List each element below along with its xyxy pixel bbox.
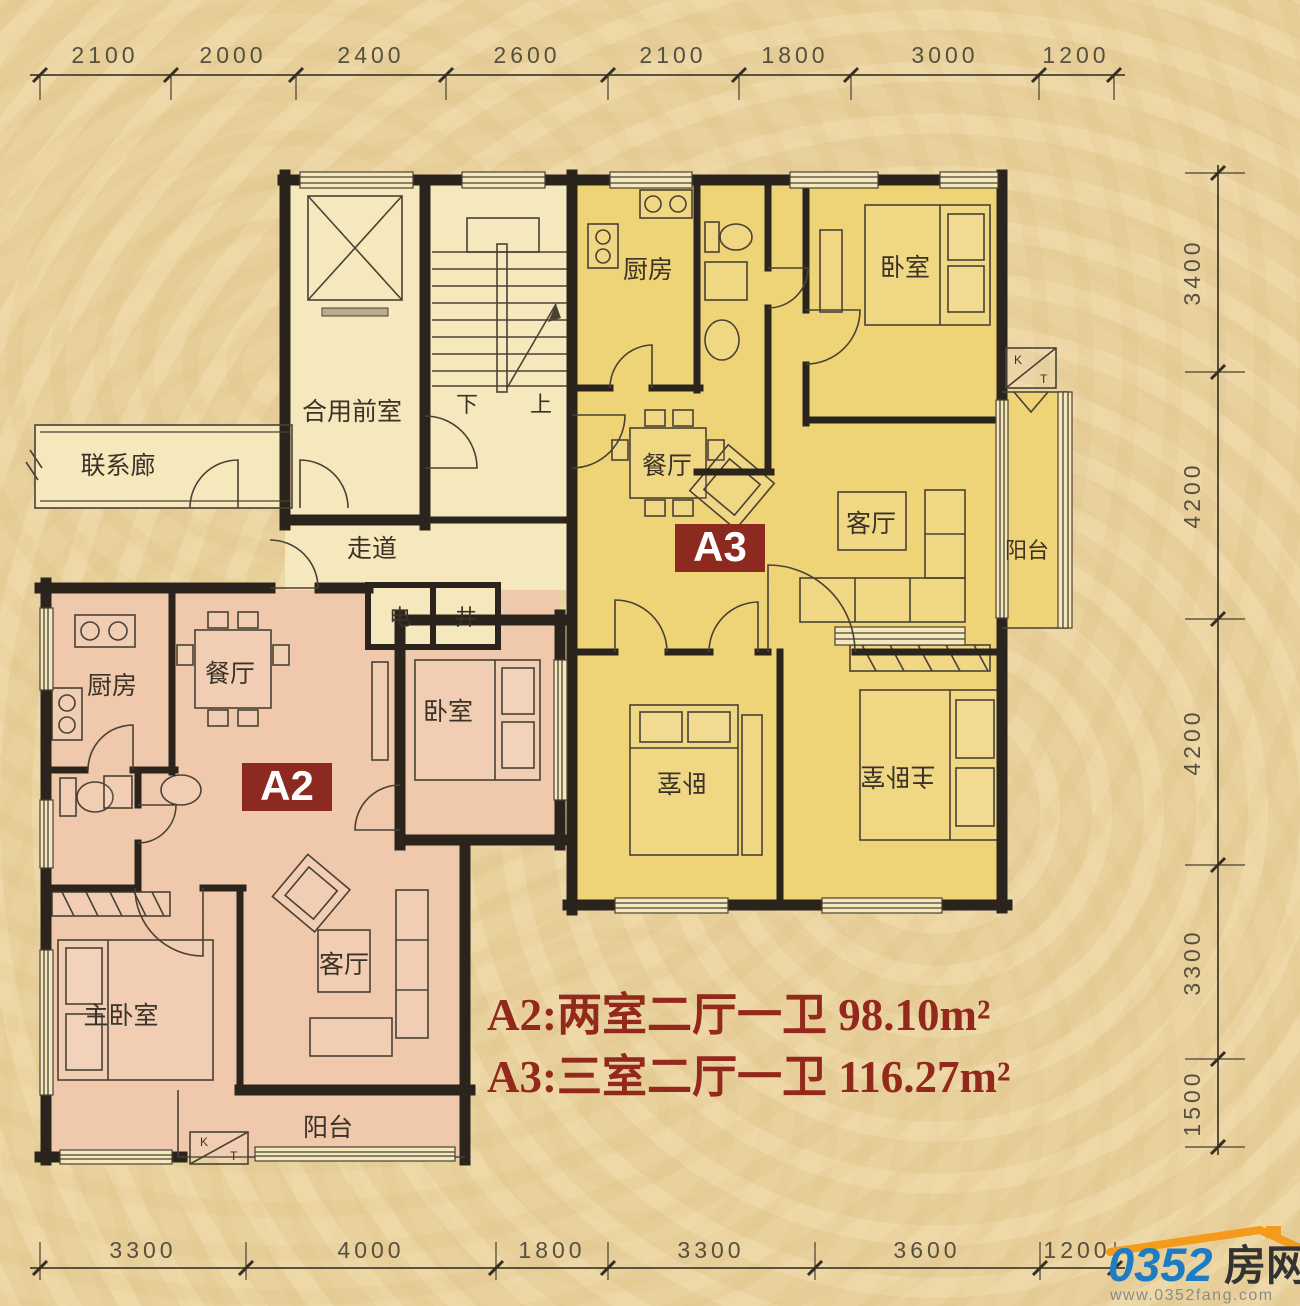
stove-icon (52, 688, 82, 740)
room-label-a3-balcony: 阳台 (1005, 538, 1049, 563)
dimension-bottom: 3300 4000 1800 3300 3600 1200 (30, 1237, 1125, 1280)
dim-label: 3000 (911, 42, 978, 68)
legend-line-a2: A2:两室二厅一卫 98.10m² (487, 989, 990, 1040)
dim-label: 4000 (337, 1237, 404, 1263)
room-label-a2-balcony: 阳台 (303, 1114, 353, 1142)
dim-label: 1800 (761, 42, 828, 68)
dim-label: 2600 (493, 42, 560, 68)
room-label-corridor: 走道 (347, 535, 397, 563)
room-label-a2-living: 客厅 (319, 951, 369, 979)
dim-label: 3300 (109, 1237, 176, 1263)
dim-label: 1800 (518, 1237, 585, 1263)
kt-t-label: T (1040, 372, 1048, 386)
dim-label: 3300 (677, 1237, 744, 1263)
dim-label: 4200 (1179, 461, 1205, 528)
badge-a2-label: A2 (260, 762, 314, 809)
logo-chimney-icon (1266, 1226, 1281, 1238)
dim-label: 1200 (1043, 1237, 1110, 1263)
wardrobe-icon (52, 892, 170, 916)
kt-k-label: K (1014, 353, 1022, 367)
dimension-right: 3400 4200 4200 3300 1500 (1179, 165, 1245, 1155)
room-label-a3-master: 主卧室 (860, 762, 935, 790)
dim-label: 2000 (199, 42, 266, 68)
kt-k-label: K (200, 1135, 208, 1149)
stair-down-label: 下 (456, 392, 478, 417)
kitchen-sink-icon (75, 615, 135, 647)
stair-up-label: 上 (530, 392, 552, 417)
room-label-a3-living: 客厅 (846, 510, 896, 538)
kt-t-label: T (230, 1149, 238, 1163)
kt-box: K T (190, 1132, 248, 1164)
legend: A2:两室二厅一卫 98.10m² A3:三室二厅一卫 116.27m² (487, 989, 1010, 1102)
room-label-a3-kitchen: 厨房 (623, 256, 673, 284)
site-logo: 0352 房网 www.0352fang.com (1108, 1226, 1300, 1304)
kitchen-sink-icon (640, 190, 692, 218)
room-label-shared-front: 合用前室 (302, 398, 402, 426)
room-label-a3-bedroom-top: 卧室 (880, 254, 930, 282)
dimension-top: 2100 2000 2400 2600 2100 1800 3000 1200 (30, 42, 1125, 100)
room-label-a2-master: 主卧室 (83, 1002, 158, 1030)
room-label-a3-dining: 餐厅 (642, 452, 692, 480)
logo-number: 0352 (1108, 1238, 1213, 1291)
room-label-elec: 电 (389, 605, 411, 630)
room-label-a2-bedroom: 卧室 (423, 698, 473, 726)
badge-a3-label: A3 (693, 523, 747, 570)
dim-label: 1500 (1179, 1069, 1205, 1136)
dim-label: 1200 (1042, 42, 1109, 68)
dim-label: 2100 (639, 42, 706, 68)
room-label-well: 井 (455, 605, 477, 630)
room-label-a2-kitchen: 厨房 (87, 672, 137, 700)
floor-plan-canvas: K T K T 合用前室 联系廊 走道 电 井 下 上 厨房 卧室 餐厅 客厅 … (0, 0, 1300, 1306)
dim-label: 3300 (1179, 928, 1205, 995)
room-label-a3-bedroom-mid: 卧室 (657, 768, 707, 796)
dim-label: 3600 (893, 1237, 960, 1263)
link-corridor-fill (35, 425, 292, 508)
stove-icon (588, 224, 618, 268)
room-label-link-corridor: 联系廊 (80, 452, 155, 480)
dim-label: 2100 (71, 42, 138, 68)
logo-name: 房网 (1224, 1242, 1300, 1289)
dim-label: 2400 (337, 42, 404, 68)
legend-line-a3: A3:三室二厅一卫 116.27m² (487, 1051, 1010, 1102)
room-label-a2-dining: 餐厅 (205, 660, 255, 688)
logo-url: www.0352fang.com (1109, 1287, 1274, 1304)
dim-label: 4200 (1179, 708, 1205, 775)
dim-label: 3400 (1179, 238, 1205, 305)
